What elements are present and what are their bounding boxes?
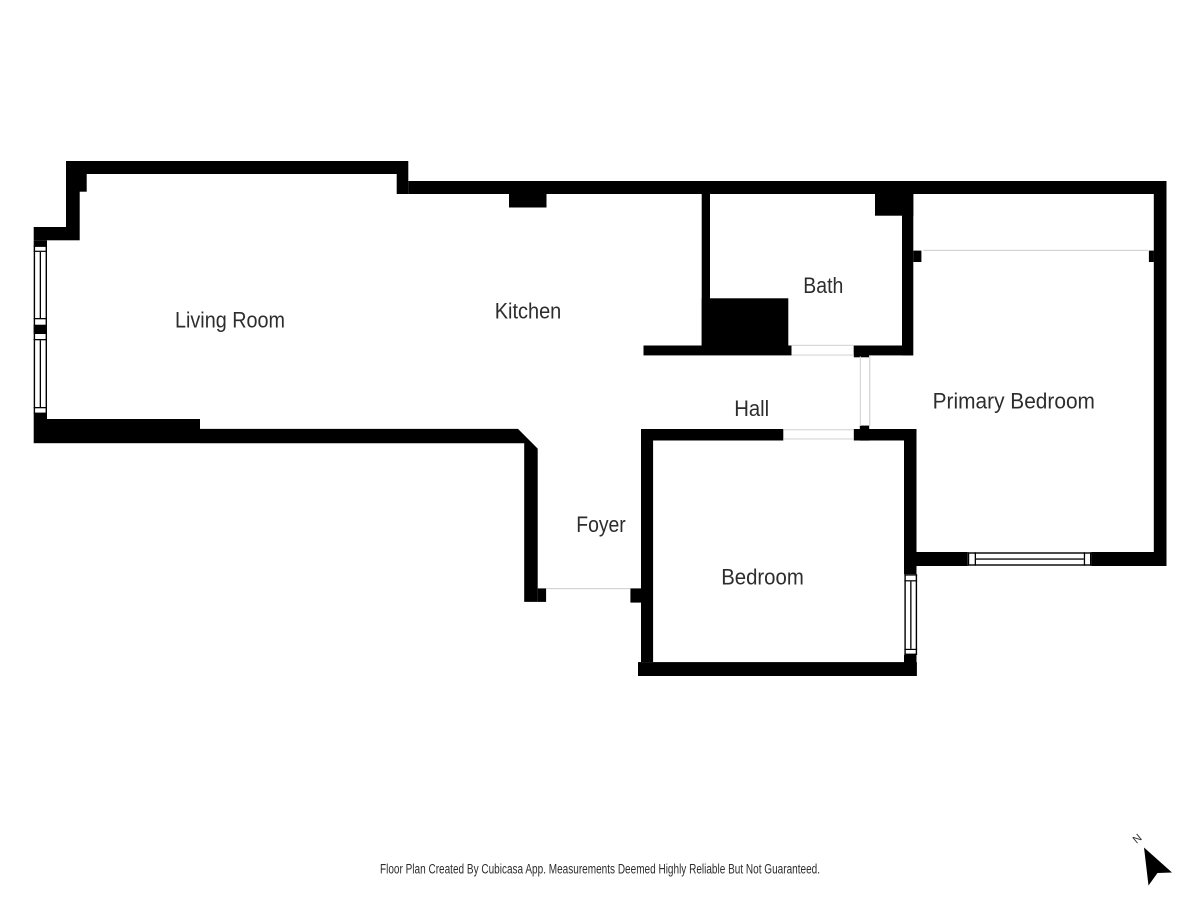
svg-text:Bedroom: Bedroom — [721, 565, 804, 590]
svg-text:Foyer: Foyer — [576, 512, 626, 537]
svg-text:Hall: Hall — [734, 396, 769, 421]
svg-text:Living Room: Living Room — [175, 307, 285, 332]
svg-text:Primary Bedroom: Primary Bedroom — [933, 389, 1095, 414]
svg-text:Kitchen: Kitchen — [495, 299, 562, 324]
svg-text:Bath: Bath — [803, 273, 843, 298]
svg-text:Floor Plan Created By Cubicasa: Floor Plan Created By Cubicasa App. Meas… — [380, 862, 820, 877]
